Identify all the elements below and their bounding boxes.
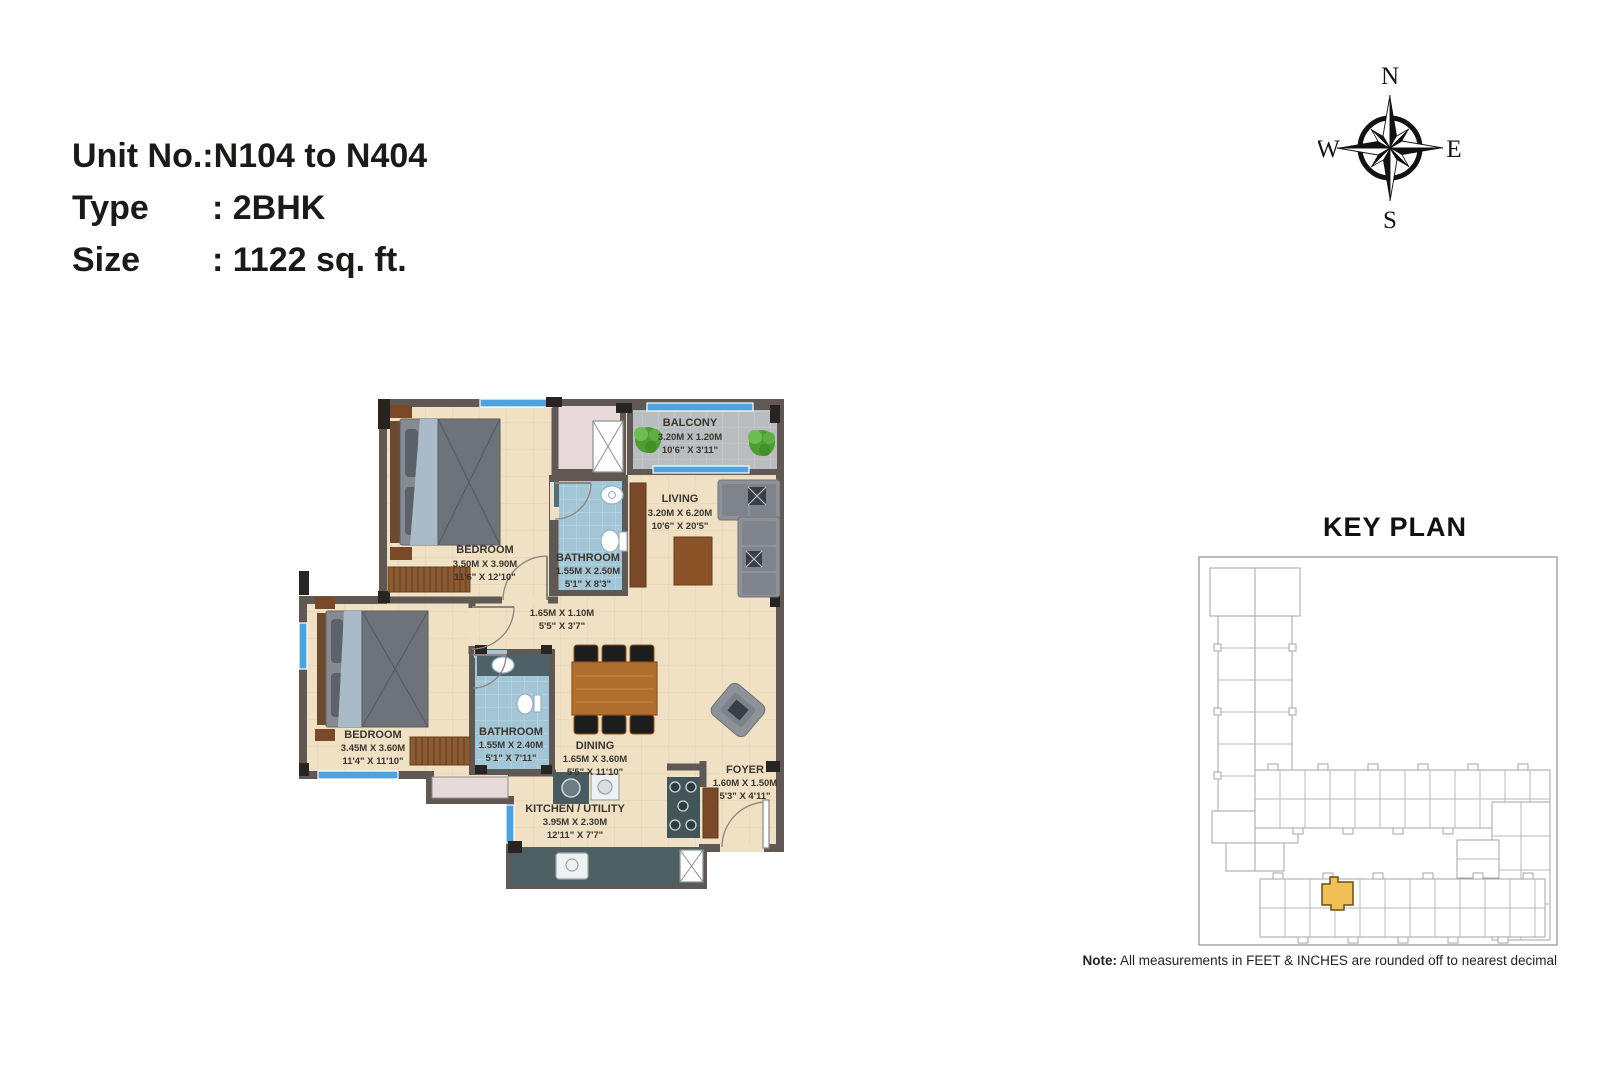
unit-number-label: Unit No.:: [72, 130, 214, 182]
note-label: Note:: [1083, 953, 1118, 968]
key-plan-map: [1198, 556, 1558, 946]
svg-text:1.65M X 1.10M: 1.65M X 1.10M: [530, 608, 595, 619]
svg-text:5'5" X 11'10": 5'5" X 11'10": [567, 767, 623, 778]
room-label-bedroom-1: BEDROOM 3.50M X 3.90M 11'6" X 12'10": [453, 544, 518, 583]
duct-shaft: [555, 403, 623, 472]
shoe-rack-icon: [703, 788, 718, 838]
bed-2-icon: [315, 597, 428, 741]
svg-text:5'1" X 7'11": 5'1" X 7'11": [485, 753, 536, 764]
room-label-balcony: BALCONY 3.20M X 1.20M 10'6" X 3'11": [658, 417, 723, 456]
unit-size-value: : 1122 sq. ft.: [212, 241, 407, 279]
svg-text:KITCHEN / UTILITY: KITCHEN / UTILITY: [525, 803, 625, 815]
measurements-note: Note: All measurements in FEET & INCHES …: [1000, 953, 1557, 968]
tv-unit-icon: [630, 483, 646, 587]
svg-text:3.45M X 3.60M: 3.45M X 3.60M: [341, 743, 406, 754]
svg-text:10'6" X 3'11": 10'6" X 3'11": [662, 445, 718, 456]
compass-south-label: S: [1383, 207, 1397, 234]
svg-text:BEDROOM: BEDROOM: [456, 544, 513, 556]
svg-text:3.50M X 3.90M: 3.50M X 3.90M: [453, 559, 518, 570]
svg-text:FOYER: FOYER: [726, 764, 764, 776]
compass-east-label: E: [1446, 136, 1461, 163]
utility-ledge: [432, 777, 508, 798]
coffee-table-icon: [674, 537, 712, 585]
svg-text:1.65M X 3.60M: 1.65M X 3.60M: [563, 754, 628, 765]
svg-text:1.55M X 2.40M: 1.55M X 2.40M: [479, 740, 544, 751]
svg-text:3.20M X 1.20M: 3.20M X 1.20M: [658, 432, 723, 443]
room-label-bathroom-1: BATHROOM 1.55M X 2.50M 5'1" X 8'3": [556, 552, 621, 590]
floor-plan-drawing: BEDROOM 3.50M X 3.90M 11'6" X 12'10" BAT…: [290, 395, 790, 895]
compass-north-label: N: [1381, 63, 1399, 90]
svg-text:BATHROOM: BATHROOM: [479, 726, 543, 738]
svg-text:11'6" X 12'10": 11'6" X 12'10": [454, 572, 516, 583]
svg-text:3.20M X 6.20M: 3.20M X 6.20M: [648, 508, 713, 519]
compass-rose-icon: N S W E: [1318, 60, 1466, 235]
wardrobe-2-icon: [410, 737, 470, 765]
svg-text:LIVING: LIVING: [662, 493, 699, 505]
unit-number-value: N104 to N404: [214, 137, 428, 175]
unit-size-label: Size: [72, 234, 212, 286]
unit-number-row: Unit No.:N104 to N404: [72, 130, 427, 182]
svg-text:5'1" X 8'3": 5'1" X 8'3": [565, 579, 611, 590]
utility-sink-icon: [556, 853, 588, 879]
floor-plan-page: Unit No.:N104 to N404 Type: 2BHK Size: 1…: [0, 0, 1620, 1080]
svg-text:BALCONY: BALCONY: [663, 417, 718, 429]
note-text: All measurements in FEET & INCHES are ro…: [1117, 953, 1557, 968]
unit-info-block: Unit No.:N104 to N404 Type: 2BHK Size: 1…: [72, 130, 427, 286]
unit-size-row: Size: 1122 sq. ft.: [72, 234, 427, 286]
svg-text:1.55M X 2.50M: 1.55M X 2.50M: [556, 566, 621, 577]
svg-text:1.60M X 1.50M: 1.60M X 1.50M: [713, 778, 778, 789]
key-plan-title: KEY PLAN: [1200, 512, 1590, 543]
room-label-bathroom-2: BATHROOM 1.55M X 2.40M 5'1" X 7'11": [479, 726, 544, 764]
utility-strip-floor: [511, 847, 703, 885]
svg-text:10'6" X 20'5": 10'6" X 20'5": [652, 521, 709, 532]
svg-text:3.95M X 2.30M: 3.95M X 2.30M: [543, 817, 608, 828]
svg-text:BEDROOM: BEDROOM: [344, 729, 401, 741]
svg-text:11'4" X 11'10": 11'4" X 11'10": [342, 756, 403, 767]
bed-1-icon: [390, 405, 500, 560]
hob-icon: [667, 777, 700, 838]
unit-type-label: Type: [72, 182, 212, 234]
svg-text:12'11" X 7'7": 12'11" X 7'7": [547, 830, 603, 841]
svg-text:BATHROOM: BATHROOM: [556, 552, 620, 564]
compass-west-label: W: [1318, 136, 1340, 163]
svg-text:5'5" X 3'7": 5'5" X 3'7": [539, 621, 585, 632]
dining-set-icon: [572, 645, 657, 734]
unit-type-row: Type: 2BHK: [72, 182, 427, 234]
svg-text:DINING: DINING: [576, 740, 615, 752]
room-label-bedroom-2: BEDROOM 3.45M X 3.60M 11'4" X 11'10": [341, 729, 406, 767]
unit-type-value: : 2BHK: [212, 189, 325, 227]
svg-text:5'3" X 4'11": 5'3" X 4'11": [719, 791, 770, 802]
